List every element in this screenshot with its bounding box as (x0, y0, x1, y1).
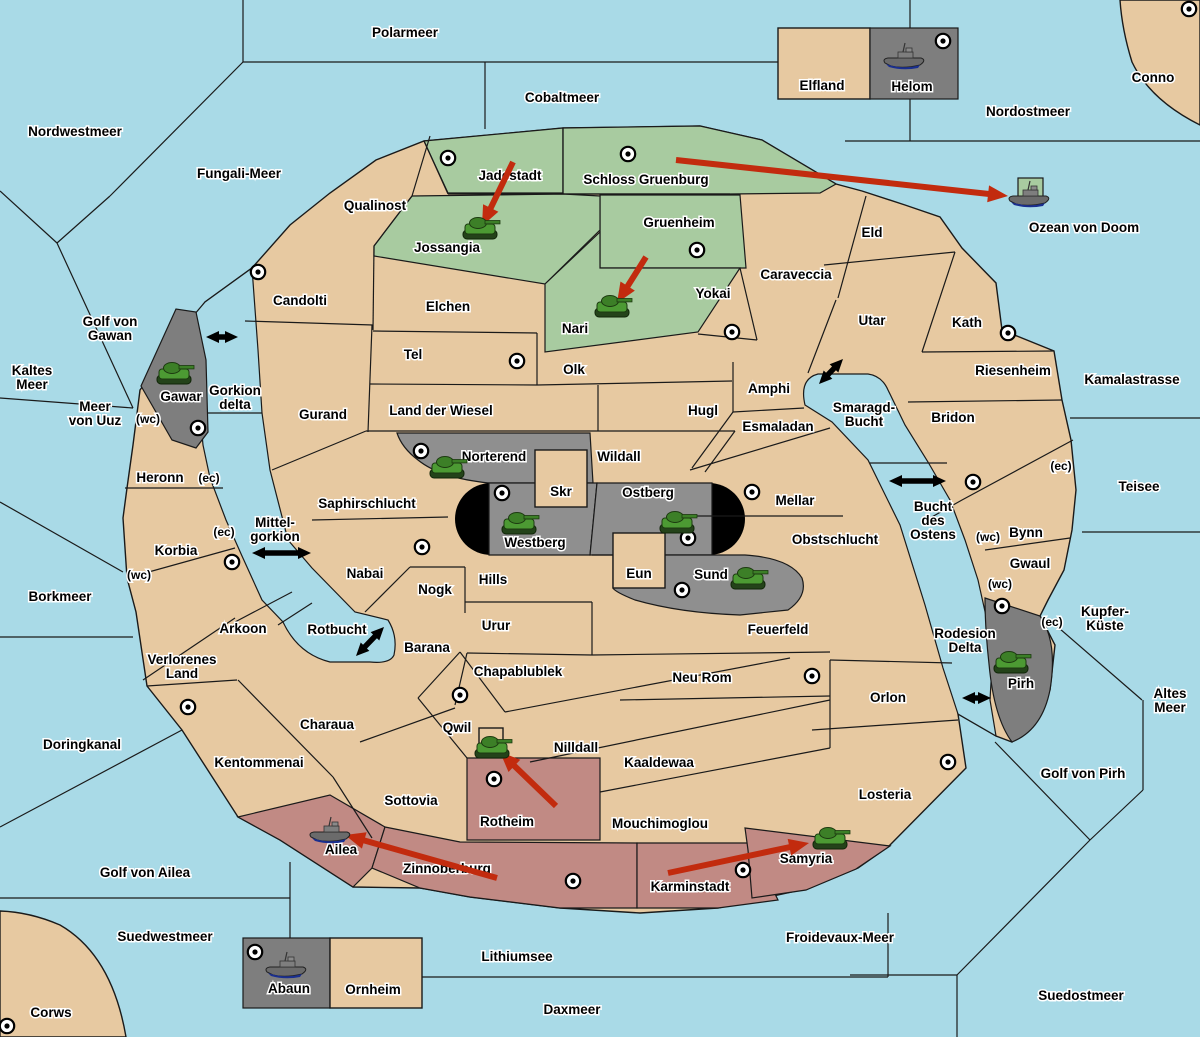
territory-ornheim (330, 938, 422, 1008)
territory-label: Karminstadt (651, 879, 730, 894)
supply-center-icon (745, 485, 759, 499)
territory-label: Amphi (748, 381, 790, 396)
territory-label: Mellar (775, 493, 815, 508)
territory-label: Riesenheim (975, 363, 1051, 378)
supply-center-icon (936, 34, 950, 48)
supply-center-icon (690, 243, 704, 257)
sea-label: Rotbucht (307, 622, 367, 637)
sea-label: Golf vonGawan (83, 314, 138, 343)
supply-center-icon (441, 151, 455, 165)
territory-label: Helom (891, 79, 932, 94)
territory-label: Bynn (1009, 525, 1043, 540)
sea-label: Ozean von Doom (1029, 220, 1139, 235)
territory-label: Hills (479, 572, 508, 587)
supply-center-icon (566, 874, 580, 888)
coast-label: (ec) (198, 471, 219, 485)
territory-label: Eld (861, 225, 882, 240)
sea-label: Cobaltmeer (525, 90, 600, 105)
territory-label: Rotheim (480, 814, 534, 829)
territory-label: Abaun (268, 981, 310, 996)
sea-label: Nordostmeer (986, 104, 1071, 119)
territory-label: Land der Wiesel (389, 403, 492, 418)
territory-label: Bridon (931, 410, 975, 425)
sea-label: Polarmeer (372, 25, 439, 40)
supply-center-icon (0, 1019, 14, 1033)
sea-label: Borkmeer (28, 589, 92, 604)
coast-label: (wc) (976, 530, 1000, 544)
supply-center-icon (251, 265, 265, 279)
supply-center-icon (941, 755, 955, 769)
territory-label: Hugl (688, 403, 718, 418)
sea-label: Froidevaux-Meer (786, 930, 895, 945)
sea-label: Suedwestmeer (117, 929, 213, 944)
supply-center-icon (736, 863, 750, 877)
coast-label: (ec) (1041, 615, 1062, 629)
supply-center-icon (225, 555, 239, 569)
supply-center-icon (510, 354, 524, 368)
sea-label: Suedostmeer (1038, 988, 1124, 1003)
territory-label: Esmaladan (742, 419, 813, 434)
territory-label: Feuerfeld (748, 622, 809, 637)
territory-label: Nogk (418, 582, 452, 597)
supply-center-icon (495, 486, 509, 500)
territory-label: Chapablublek (474, 664, 563, 679)
territory-label: Obstschlucht (792, 532, 879, 547)
territory-label: Kaaldewaa (624, 755, 694, 770)
supply-center-icon (805, 669, 819, 683)
sea-label: Kupfer-Küste (1081, 604, 1129, 633)
coast-label: (ec) (213, 525, 234, 539)
territory-label: Kath (952, 315, 982, 330)
supply-center-icon (487, 772, 501, 786)
territory-label: Caraveccia (760, 267, 832, 282)
territory-label: Wildall (597, 449, 640, 464)
territory-label: Westberg (504, 535, 565, 550)
territory-label: Sund (694, 567, 728, 582)
territory-label: Eun (626, 566, 652, 581)
territory-label: Jossangia (414, 240, 481, 255)
territory-label: Gwaul (1010, 556, 1051, 571)
supply-center-icon (995, 599, 1009, 613)
territory-label: Gawar (160, 389, 202, 404)
supply-center-icon (1001, 326, 1015, 340)
territory-label: Qwil (443, 720, 472, 735)
supply-center-icon (966, 475, 980, 489)
sea-label: Doringkanal (43, 737, 121, 752)
territory-label: Kentommenai (214, 755, 303, 770)
territory-label: Nabai (347, 566, 384, 581)
sea-label: Conno (1132, 70, 1175, 85)
territory-label: Charaua (300, 717, 355, 732)
territory-label: Losteria (859, 787, 912, 802)
territory-label: Skr (550, 484, 573, 499)
territory-label: Ailea (325, 842, 358, 857)
territory-label: Samyria (780, 851, 833, 866)
territory-label: Elfland (799, 78, 844, 93)
supply-center-icon (414, 444, 428, 458)
territory-label: Orlon (870, 690, 906, 705)
coast-label: (wc) (127, 568, 151, 582)
territory-label: Utar (858, 313, 886, 328)
territory-label: Candolti (273, 293, 327, 308)
territory-label: Gurand (299, 407, 347, 422)
territory-label: Yokai (695, 286, 730, 301)
sea-label: AltesMeer (1153, 686, 1186, 715)
territory-label: Neu Rom (672, 670, 731, 685)
supply-center-icon (415, 540, 429, 554)
sea-label: Kamalastrasse (1084, 372, 1180, 387)
territory-label: Saphirschlucht (318, 496, 416, 511)
territory-label: Arkoon (219, 621, 266, 636)
sea-label: Lithiumsee (481, 949, 553, 964)
coast-label: (ec) (1050, 459, 1071, 473)
territory-label: Ostberg (622, 485, 674, 500)
sea-label: Daxmeer (543, 1002, 601, 1017)
territory-label: Nari (562, 321, 588, 336)
territory-label: Pirh (1008, 676, 1034, 691)
supply-center-icon (725, 325, 739, 339)
territory-label: Elchen (426, 299, 470, 314)
sea-label: Nordwestmeer (28, 124, 123, 139)
territory-gruenheim[interactable] (600, 195, 746, 268)
territory-label: Schloss Gruenburg (583, 172, 708, 187)
territory-label: Qualinost (344, 198, 407, 213)
sea-label: Golf von Pirh (1041, 766, 1126, 781)
game-map-stage: PolarmeerNordwestmeerCobaltmeerFungali-M… (0, 0, 1200, 1037)
territory-label: Korbia (155, 543, 198, 558)
sea-label: Fungali-Meer (197, 166, 282, 181)
sea-label: Mittel-gorkion (250, 515, 300, 544)
territory-label: Tel (404, 347, 423, 362)
territory-label: Norterend (462, 449, 527, 464)
territory-label: Ornheim (345, 982, 401, 997)
territory-label: Heronn (136, 470, 183, 485)
sea-label: Golf von Ailea (100, 865, 191, 880)
territory-label: Urur (482, 618, 511, 633)
sea-label: Corws (30, 1005, 71, 1020)
territory-label: Barana (404, 640, 450, 655)
supply-center-icon (675, 583, 689, 597)
supply-center-icon (191, 421, 205, 435)
supply-center-icon (1182, 2, 1196, 16)
supply-center-icon (248, 945, 262, 959)
territory-label: Olk (563, 362, 585, 377)
territory-label: Nilldall (554, 740, 598, 755)
territory-label: Gruenheim (643, 215, 714, 230)
supply-center-icon (621, 147, 635, 161)
supply-center-icon (181, 700, 195, 714)
territory-label: Sottovia (384, 793, 438, 808)
supply-center-icon (453, 688, 467, 702)
coast-label: (wc) (988, 577, 1012, 591)
territory-label: Mouchimoglou (612, 816, 708, 831)
sea-label: Teisee (1118, 479, 1160, 494)
sea-label: KaltesMeer (12, 363, 53, 392)
coast-label: (wc) (136, 412, 160, 426)
